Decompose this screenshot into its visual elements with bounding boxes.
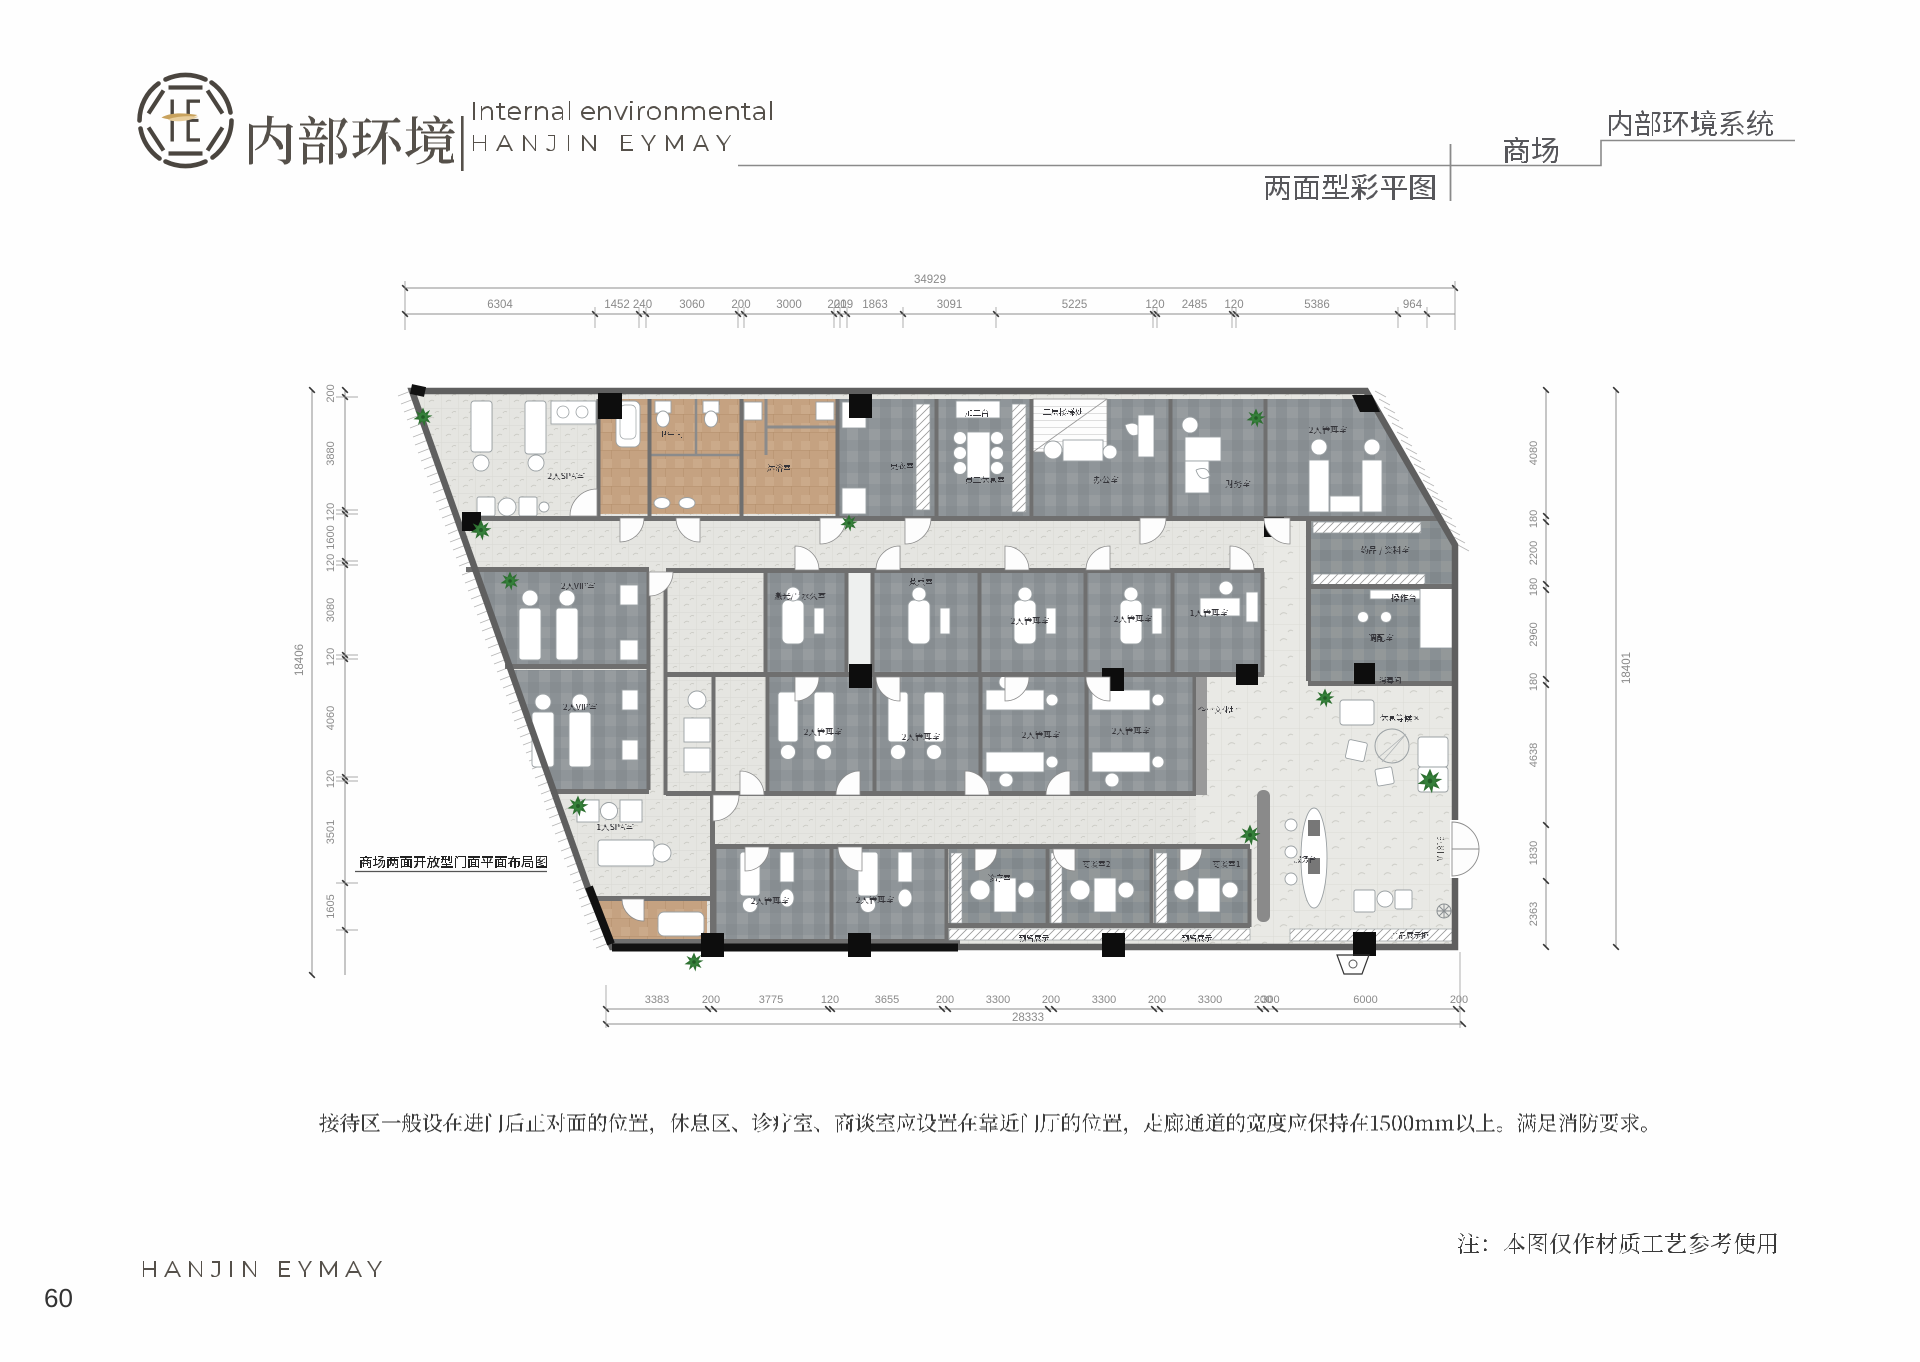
svg-text:5225: 5225 xyxy=(1062,299,1088,311)
svg-text:2960: 2960 xyxy=(1528,622,1540,646)
svg-text:964: 964 xyxy=(1403,299,1423,311)
svg-text:200: 200 xyxy=(731,299,750,311)
svg-text:200: 200 xyxy=(325,384,337,402)
svg-text:300: 300 xyxy=(1261,994,1279,1006)
svg-text:3880: 3880 xyxy=(325,441,337,465)
svg-text:1600: 1600 xyxy=(325,525,337,549)
svg-text:3300: 3300 xyxy=(1092,994,1116,1006)
svg-text:3501: 3501 xyxy=(325,820,337,844)
svg-text:1863: 1863 xyxy=(862,299,888,311)
svg-text:3060: 3060 xyxy=(679,299,705,311)
svg-text:3655: 3655 xyxy=(875,994,899,1006)
svg-text:3300: 3300 xyxy=(986,994,1010,1006)
svg-text:3091: 3091 xyxy=(937,299,963,311)
svg-text:6304: 6304 xyxy=(487,299,513,311)
svg-text:3000: 3000 xyxy=(776,299,802,311)
svg-text:120: 120 xyxy=(1224,299,1243,311)
svg-text:200: 200 xyxy=(702,994,720,1006)
svg-text:2485: 2485 xyxy=(1182,299,1208,311)
svg-text:4060: 4060 xyxy=(325,706,337,730)
svg-text:219: 219 xyxy=(834,299,853,311)
svg-text:2363: 2363 xyxy=(1528,902,1540,926)
svg-text:3383: 3383 xyxy=(645,994,669,1006)
svg-text:180: 180 xyxy=(1528,510,1540,528)
svg-text:120: 120 xyxy=(325,554,337,572)
svg-text:120: 120 xyxy=(821,994,839,1006)
svg-text:5386: 5386 xyxy=(1304,299,1330,311)
svg-text:3080: 3080 xyxy=(325,598,337,622)
svg-text:18401: 18401 xyxy=(1621,652,1633,684)
svg-text:1605: 1605 xyxy=(325,894,337,918)
svg-text:180: 180 xyxy=(1528,673,1540,691)
svg-text:1452: 1452 xyxy=(604,299,630,311)
svg-text:3775: 3775 xyxy=(759,994,783,1006)
svg-text:6000: 6000 xyxy=(1353,994,1377,1006)
svg-text:240: 240 xyxy=(633,299,652,311)
svg-text:4638: 4638 xyxy=(1528,743,1540,767)
svg-text:120: 120 xyxy=(325,503,337,521)
svg-text:200: 200 xyxy=(1450,994,1468,1006)
svg-text:34929: 34929 xyxy=(914,274,946,286)
svg-text:120: 120 xyxy=(325,770,337,788)
svg-text:18406: 18406 xyxy=(294,644,306,676)
svg-text:3300: 3300 xyxy=(1198,994,1222,1006)
svg-text:200: 200 xyxy=(1148,994,1166,1006)
svg-text:120: 120 xyxy=(1145,299,1164,311)
svg-text:4080: 4080 xyxy=(1528,441,1540,465)
svg-text:1830: 1830 xyxy=(1528,841,1540,865)
svg-text:60: 60 xyxy=(44,1283,73,1313)
svg-text:180: 180 xyxy=(1528,578,1540,596)
svg-text:2200: 2200 xyxy=(1528,541,1540,565)
svg-text:200: 200 xyxy=(1042,994,1060,1006)
svg-text:120: 120 xyxy=(325,648,337,666)
svg-text:200: 200 xyxy=(936,994,954,1006)
svg-text:28333: 28333 xyxy=(1012,1012,1044,1024)
